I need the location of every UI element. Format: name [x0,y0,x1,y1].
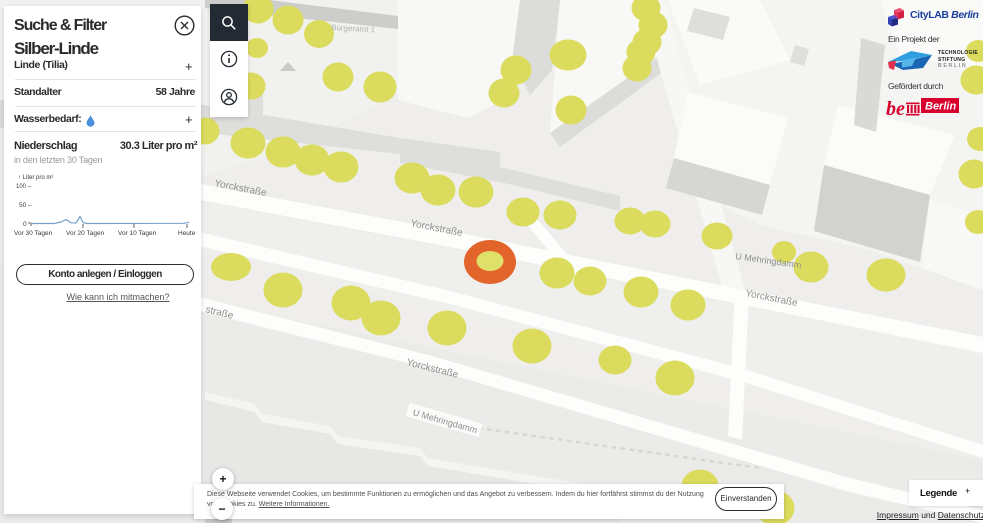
svg-text:Berlin: Berlin [925,101,956,113]
svg-text:Heute: Heute [178,230,196,237]
svg-text:↑ Liter pro m²: ↑ Liter pro m² [18,175,53,181]
svg-text:Vor 30 Tagen: Vor 30 Tagen [14,230,53,237]
svg-text:Vor 10 Tagen: Vor 10 Tagen [118,230,157,237]
svg-text:50 –: 50 – [19,202,32,209]
svg-text:0: 0 [23,221,27,228]
svg-text:Vor 20 Tagen: Vor 20 Tagen [66,230,105,237]
svg-text:100 –: 100 – [16,184,32,190]
svg-text:be: be [886,98,905,119]
